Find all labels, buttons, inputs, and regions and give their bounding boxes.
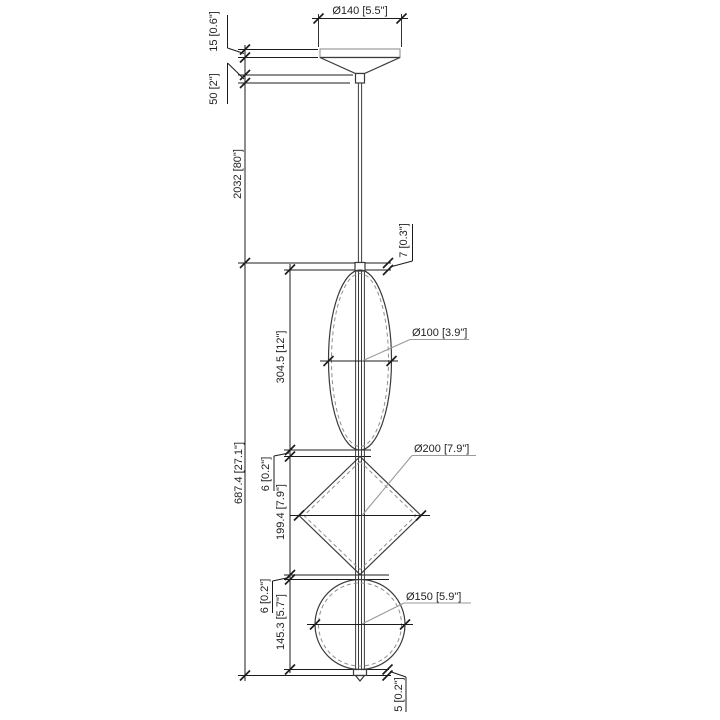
dim-canopy-diameter: Ø140 [5.5"] [312,5,408,47]
dim-label-diamond-height: 199.4 [7.9"] [275,484,287,540]
finial-cap [354,670,367,676]
dimension-ticks [383,665,393,681]
dim-label-ellipse-height: 304.5 [12"] [275,331,287,384]
dim-label-cable-length: 2032 [80"] [232,149,244,199]
dim-label-finial-height: 5 [0.2"] [393,677,405,711]
outer-dimension-chain: 15 [0.6"] 50 [2"] 2032 [80"] 687.4 [27.1… [208,11,391,681]
dim-sphere-diameter: Ø150 [5.9"] [307,591,471,630]
finial-point [356,676,365,682]
canopy-cone [320,58,400,74]
dim-label-sphere-height: 145.3 [5.7"] [275,594,287,650]
ellipse-glass-element: Ø100 [3.9"] [320,270,469,450]
canopy-group: Ø140 [5.5"] [312,5,408,83]
dim-label-canopy-height: 50 [2"] [208,73,220,104]
pendant-lamp-dimension-drawing: Ø140 [5.5"] 15 [0.6"] [0,0,720,720]
dim-label-gap-top: 6 [0.2"] [260,457,272,491]
sphere-glass-element: Ø150 [5.9"] [307,580,471,670]
drawing-canvas: Ø140 [5.5"] 15 [0.6"] [0,0,720,720]
dim-ellipse-diameter: Ø100 [3.9"] [320,327,469,366]
diamond-glass-element: Ø200 [7.9"] [290,443,476,575]
inner-dimension-chain: 304.5 [12"] 6 [0.2"] 199.4 [7.9"] 6 [0.2… [259,264,391,675]
dim-canopy-height: 50 [2"] [208,63,244,105]
canopy-cable-connector [356,74,365,84]
dim-connector-height: 7 [0.3"] [383,223,413,275]
dim-label-ellipse-diameter: Ø100 [3.9"] [412,327,467,339]
ellipse-inner-dashed-outline [332,274,389,447]
suspension-cable [358,83,361,263]
central-stem-rod [355,263,365,670]
dim-finial-height: 5 [0.2"] [383,665,407,713]
dim-label-gap-bottom: 6 [0.2"] [259,579,271,613]
dim-label-overall-height: 687.4 [27.1"] [233,442,245,504]
bottom-finial [354,670,367,682]
dim-label-connector-height: 7 [0.3"] [398,223,410,257]
dim-canopy-thickness: 15 [0.6"] [208,11,244,53]
ellipse-outer-outline [329,270,392,450]
canopy-plate [320,49,400,58]
dim-label-canopy-thickness: 15 [0.6"] [208,11,220,52]
dim-diamond-diameter: Ø200 [7.9"] [290,443,476,521]
dim-label-diamond-diameter: Ø200 [7.9"] [414,443,469,455]
dim-label-sphere-diameter: Ø150 [5.9"] [406,591,461,603]
dim-label-canopy-diameter: Ø140 [5.5"] [332,5,387,17]
